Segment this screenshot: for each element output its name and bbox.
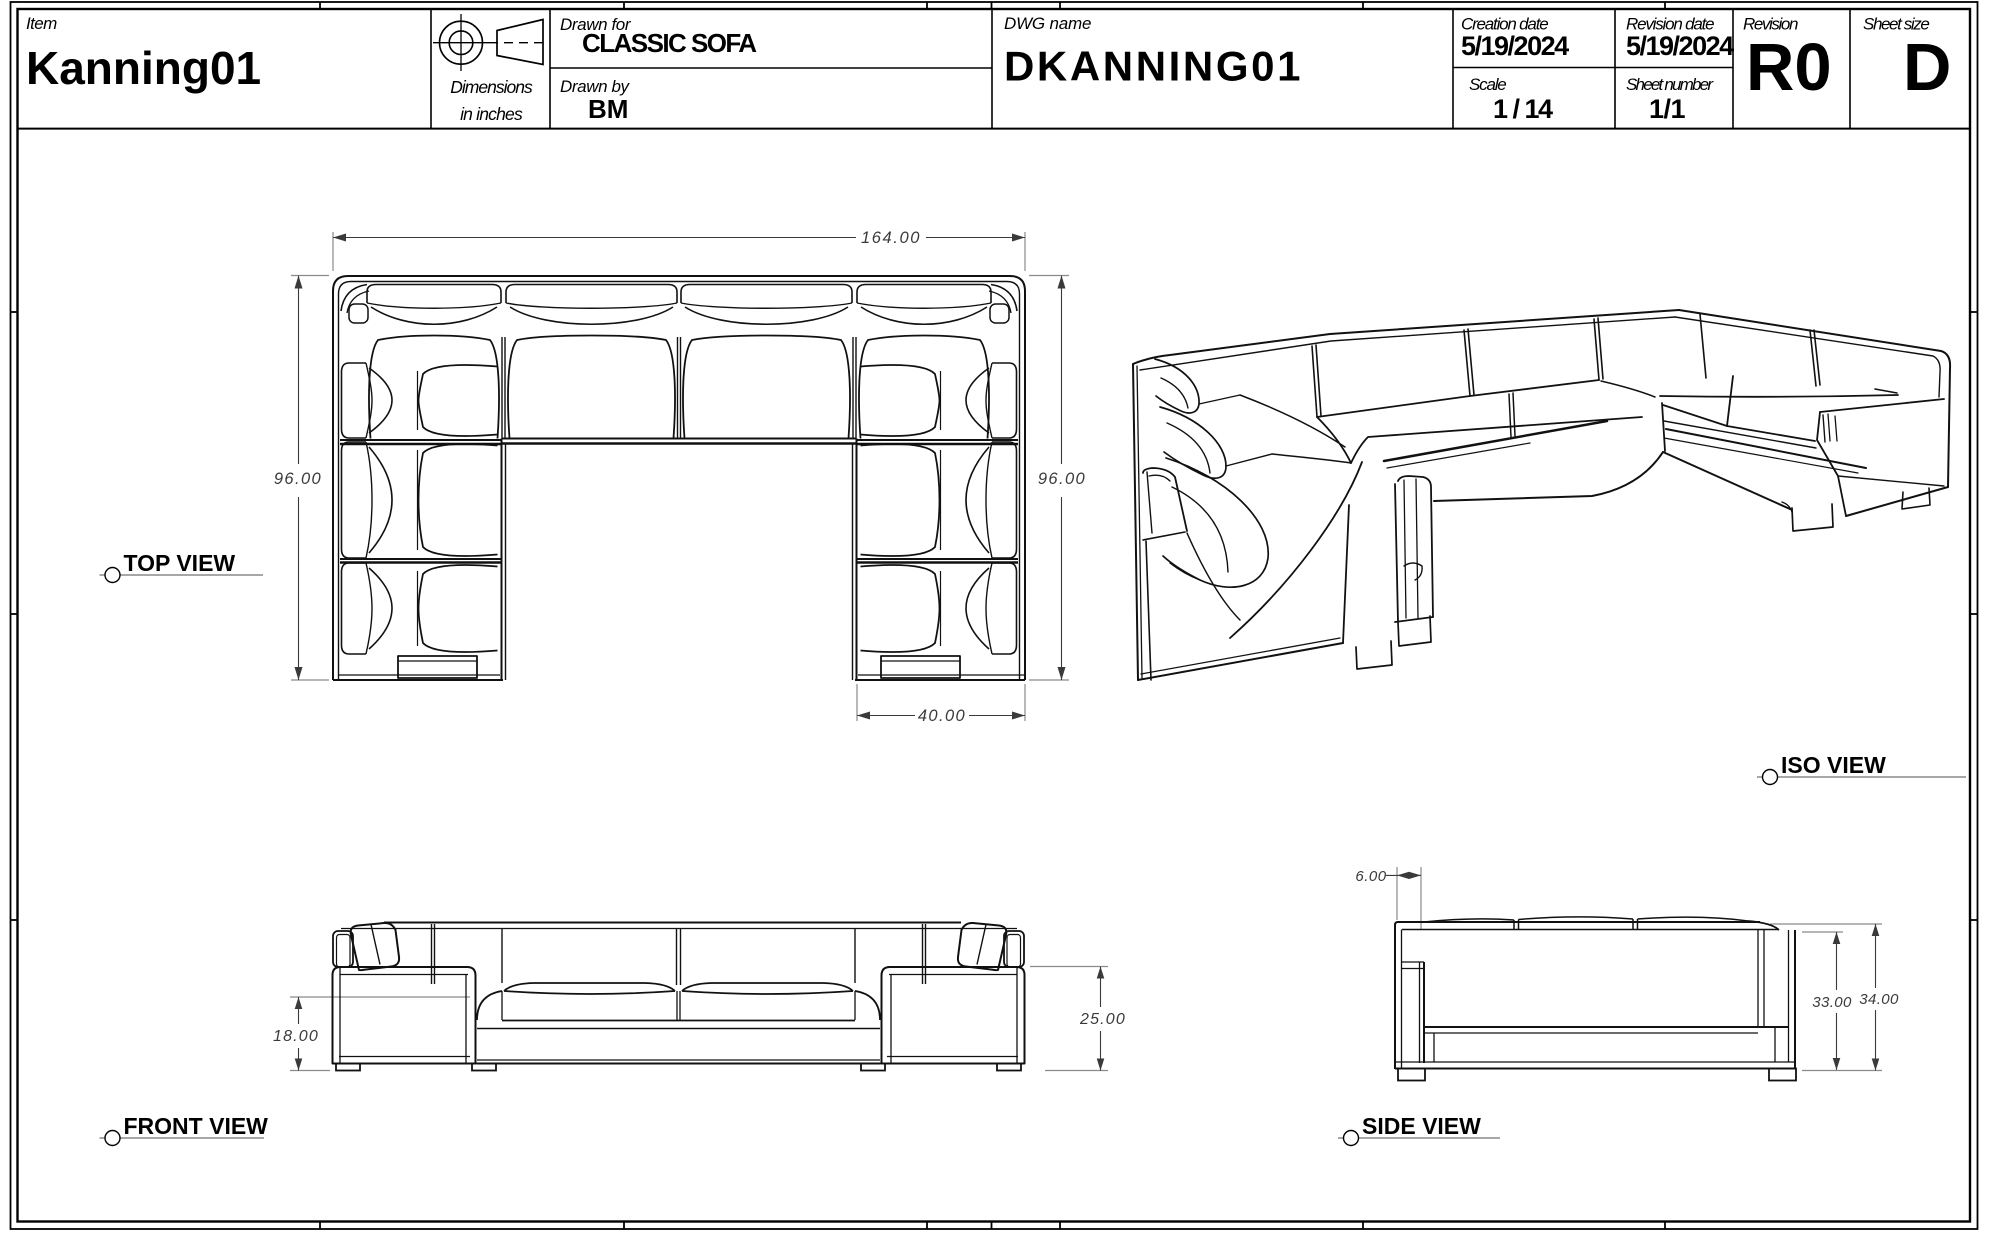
svg-text:Dimensions: Dimensions: [450, 77, 533, 97]
svg-text:ISO VIEW: ISO VIEW: [1781, 752, 1886, 778]
svg-text:BM: BM: [588, 94, 628, 124]
svg-text:DWG name: DWG name: [1004, 14, 1091, 33]
svg-text:33.00: 33.00: [1812, 994, 1852, 1011]
svg-text:1 / 14: 1 / 14: [1493, 94, 1553, 124]
svg-text:6.00: 6.00: [1355, 868, 1386, 885]
svg-text:TOP VIEW: TOP VIEW: [124, 550, 236, 576]
svg-text:in inches: in inches: [460, 104, 523, 124]
svg-text:Item: Item: [26, 14, 57, 33]
svg-text:Kanning01: Kanning01: [26, 42, 261, 94]
svg-text:96.00: 96.00: [1038, 470, 1086, 488]
svg-text:96.00: 96.00: [274, 470, 322, 488]
svg-text:18.00: 18.00: [273, 1028, 319, 1045]
svg-text:DKANNING01: DKANNING01: [1004, 43, 1303, 90]
svg-text:34.00: 34.00: [1859, 991, 1899, 1008]
svg-text:D: D: [1903, 30, 1951, 105]
svg-text:164.00: 164.00: [861, 229, 921, 247]
svg-text:Scale: Scale: [1469, 75, 1506, 94]
svg-text:25.00: 25.00: [1079, 1011, 1126, 1028]
svg-text:FRONT VIEW: FRONT VIEW: [124, 1113, 269, 1139]
svg-text:1/1: 1/1: [1649, 94, 1686, 124]
svg-text:SIDE VIEW: SIDE VIEW: [1362, 1113, 1481, 1139]
svg-text:5/19/2024: 5/19/2024: [1461, 31, 1569, 61]
svg-text:5/19/2024: 5/19/2024: [1626, 31, 1734, 61]
svg-text:R0: R0: [1746, 30, 1832, 105]
svg-text:Sheet number: Sheet number: [1626, 75, 1714, 94]
svg-text:40.00: 40.00: [918, 707, 966, 725]
svg-text:CLASSIC SOFA: CLASSIC SOFA: [582, 28, 757, 58]
